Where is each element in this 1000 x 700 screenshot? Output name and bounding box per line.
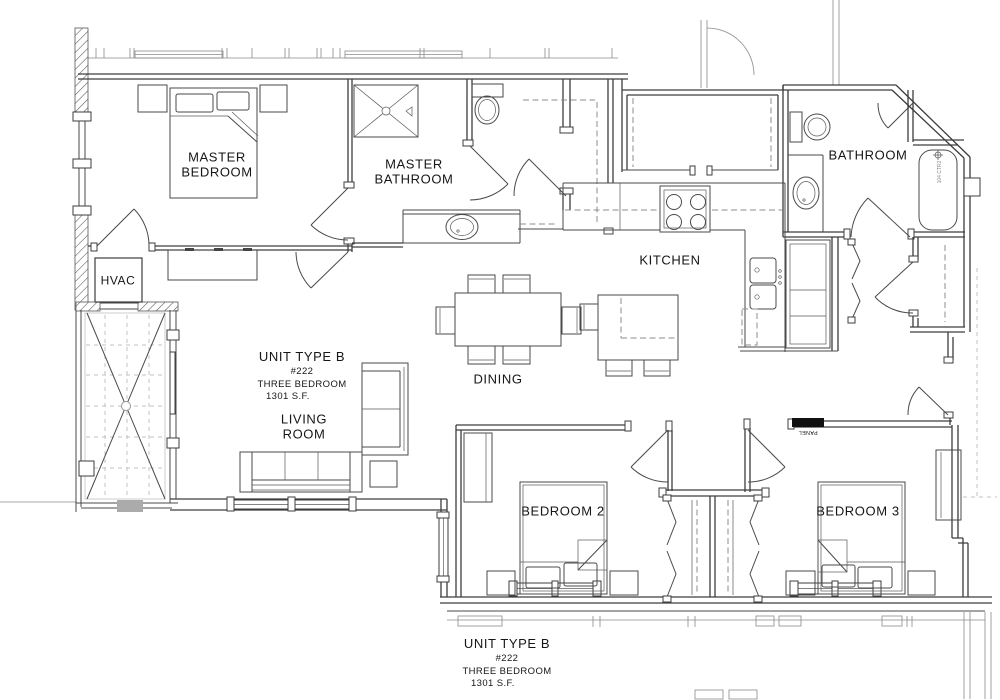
unit-type: THREE BEDROOM <box>240 379 364 392</box>
label-hvac: HVAC <box>88 274 148 287</box>
corridor-dashed-lines <box>963 268 997 497</box>
balcony-shaft <box>76 310 179 512</box>
label-master-bathroom: MASTER BATHROOM <box>368 157 460 186</box>
bathroom-fixtures <box>788 112 957 232</box>
electrical-panel <box>792 418 824 427</box>
label-bedroom-3: BEDROOM 3 <box>798 505 918 520</box>
unit-area: 1301 S.F. <box>445 678 569 691</box>
floor-plan-linework <box>0 0 1000 700</box>
label-bathroom: BATHROOM <box>798 149 938 164</box>
unit-name: UNIT TYPE B <box>445 636 569 651</box>
dining-furniture <box>436 275 581 364</box>
label-kitchen: KITCHEN <box>610 254 730 269</box>
floor-plan: MASTER BEDROOM MASTER BATHROOM BATHROOM … <box>0 0 1000 700</box>
label-bedroom-2: BEDROOM 2 <box>503 505 623 520</box>
kitchen-fixtures <box>563 183 838 376</box>
unit-number: #222 <box>445 653 569 666</box>
unit-name: UNIT TYPE B <box>240 349 364 364</box>
label-tub-tag: 104 CTR2 <box>938 161 944 184</box>
unit-type: THREE BEDROOM <box>445 666 569 679</box>
bedroom3-furniture <box>786 450 961 595</box>
unit-area: 1301 S.F. <box>240 391 364 404</box>
label-master-bedroom: MASTER BEDROOM <box>177 150 257 179</box>
unit-info-living: UNIT TYPE B #222 THREE BEDROOM 1301 S.F. <box>240 349 364 404</box>
unit-info-bottom: UNIT TYPE B #222 THREE BEDROOM 1301 S.F. <box>445 636 569 691</box>
windows <box>73 112 881 596</box>
label-panel: PANEL <box>798 429 817 435</box>
label-dining: DINING <box>448 373 548 388</box>
master-bedroom-furniture <box>138 85 287 280</box>
label-living-room: LIVING ROOM <box>272 412 336 441</box>
hall-closets <box>659 488 769 602</box>
unit-number: #222 <box>240 366 364 379</box>
